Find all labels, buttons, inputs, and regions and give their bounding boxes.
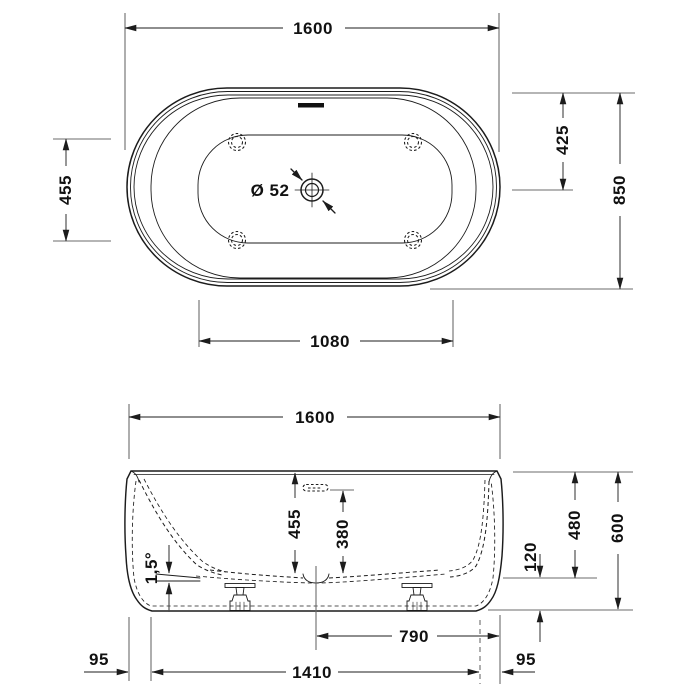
dim-label-rim-to-drain: 425 [553, 125, 572, 155]
drawing-canvas: Ø 52 1600 455 425 [0, 0, 700, 700]
dimension-inner-depth: 455 [285, 473, 304, 573]
side-view: 1600 455 380 1,5° 480 [84, 404, 633, 684]
dimension-feet-spacing: 455 [53, 139, 111, 241]
bathtub-technical-drawing: Ø 52 1600 455 425 [0, 0, 700, 700]
dimension-total-height: 600 [488, 472, 633, 610]
drain: Ø 52 [251, 169, 335, 213]
overflow-slot [298, 103, 324, 108]
dim-label-center-to-edge: 790 [399, 627, 429, 646]
drain-leader-arrow [291, 169, 302, 180]
dim-label-top-width: 1600 [293, 19, 333, 38]
dim-label-left-inset: 95 [89, 650, 109, 669]
top-view-floor-outline [198, 135, 452, 243]
dim-label-drain-diameter: Ø 52 [251, 181, 290, 200]
side-view-tub-outline [125, 471, 503, 611]
foot-right [402, 584, 432, 611]
dimension-top-width: 1600 [125, 13, 499, 152]
dim-label-floor-slope: 1,5° [142, 552, 161, 584]
dimension-floor-length: 1080 [199, 300, 453, 351]
top-view-tub-outline [127, 88, 500, 286]
dimension-overflow-height: 380 [330, 490, 354, 573]
dimension-base-gap: 120 [521, 542, 540, 642]
dimension-top-depth: 850 [430, 93, 633, 289]
dim-label-base-gap: 120 [521, 542, 540, 572]
dimension-center-to-edge: 790 [317, 615, 500, 684]
dim-label-base-length: 1410 [292, 663, 332, 682]
dim-label-right-inset: 95 [516, 650, 536, 669]
dim-label-overflow-height: 380 [333, 519, 352, 549]
floor-slope-line [210, 570, 440, 578]
side-view-feet [225, 584, 432, 611]
dimension-left-inset: 95 [84, 617, 129, 681]
basin-rim-outline [151, 98, 476, 278]
dim-label-total-height: 600 [608, 513, 627, 543]
dimension-right-inset: 95 [502, 650, 536, 672]
shell-inner-dashed [132, 481, 494, 606]
foot-left [225, 584, 255, 611]
dim-label-top-depth: 850 [610, 175, 629, 205]
dim-label-side-width: 1600 [295, 408, 335, 427]
overflow-side [303, 485, 328, 492]
dim-label-floor-length: 1080 [310, 332, 350, 351]
side-view-interior [139, 479, 489, 583]
drain-leader-arrow [323, 201, 335, 213]
dim-label-inner-floor-height: 480 [565, 510, 584, 540]
top-view: Ø 52 1600 455 425 [53, 13, 635, 351]
dimension-floor-slope: 1,5° [142, 545, 200, 612]
dimension-side-width: 1600 [129, 404, 500, 459]
dim-label-feet-spacing: 455 [56, 175, 75, 205]
dim-label-inner-depth: 455 [285, 509, 304, 539]
